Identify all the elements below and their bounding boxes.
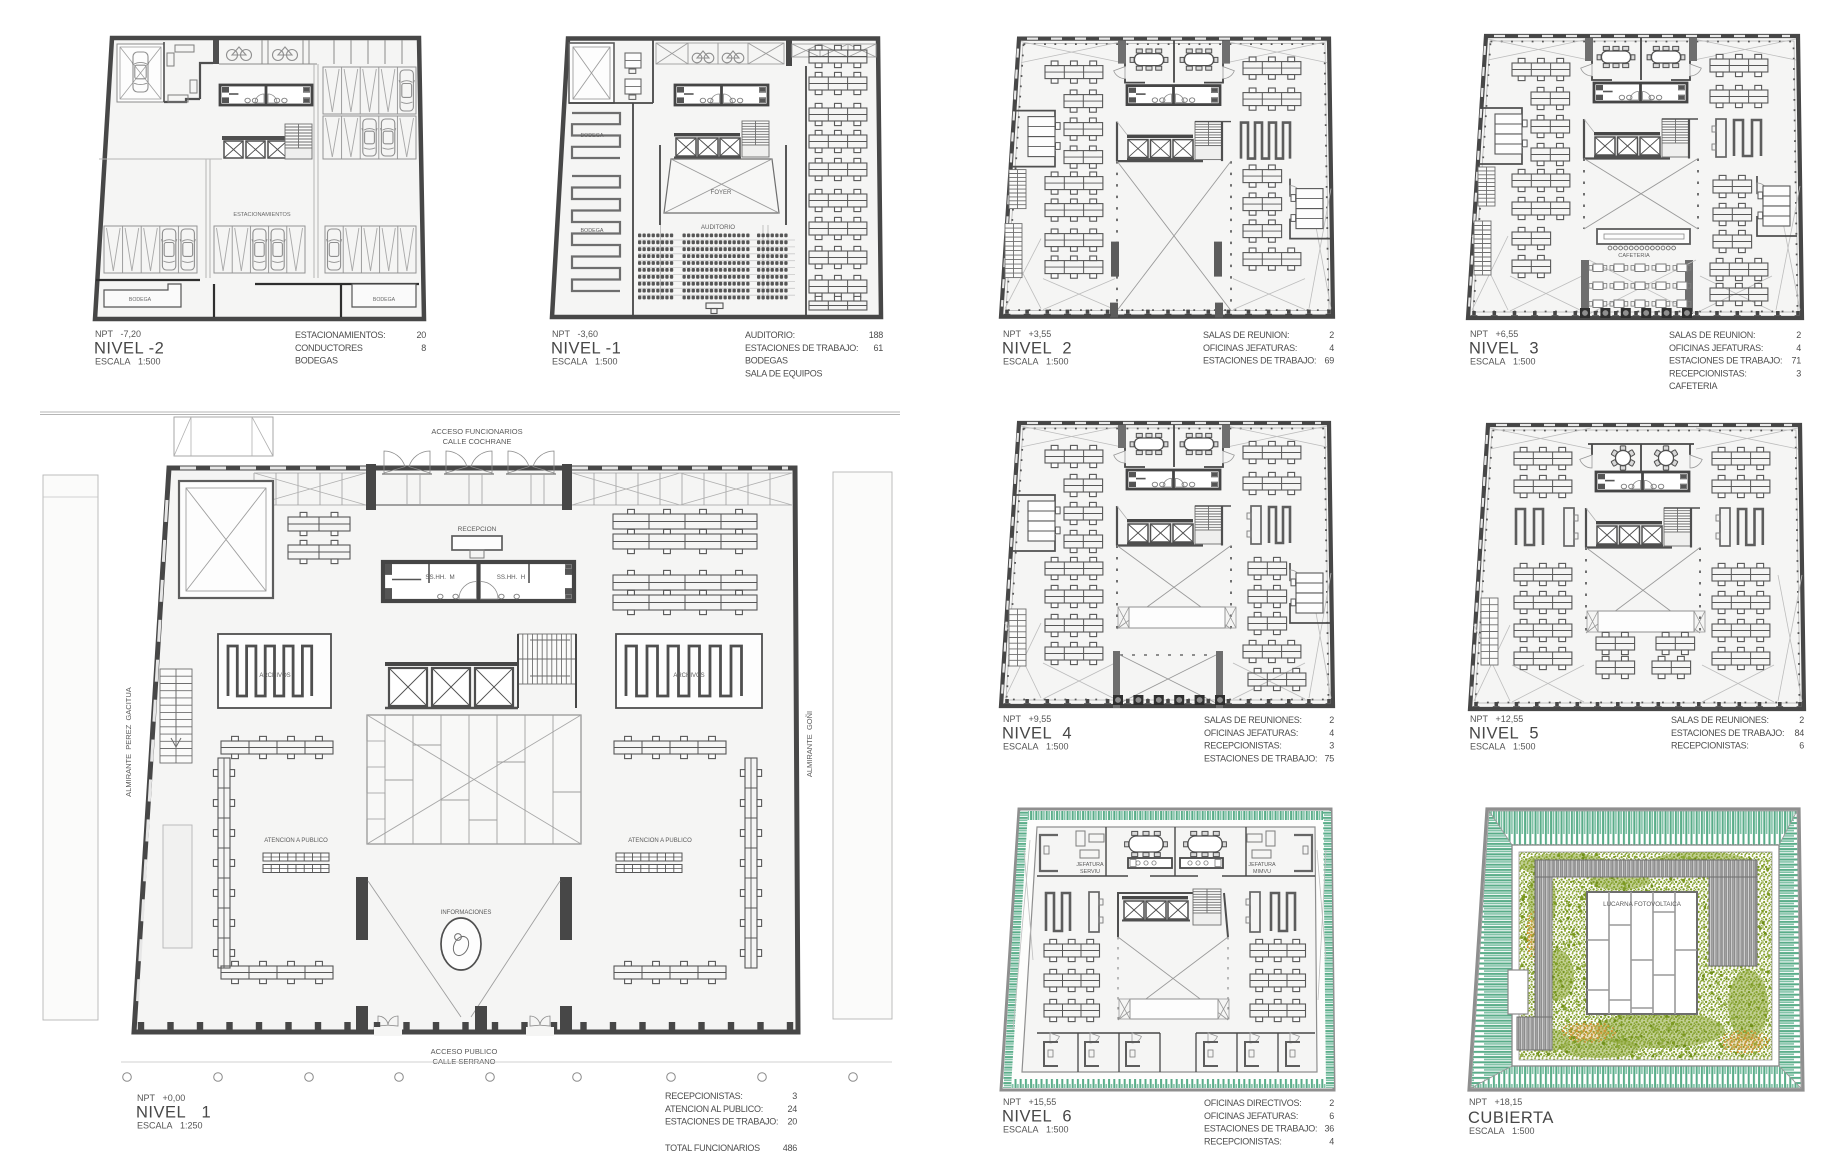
svg-text:BODEGA: BODEGA xyxy=(580,133,603,139)
svg-text:61: 61 xyxy=(873,343,883,353)
svg-text:LUCARNA FOTOVOLTAICA: LUCARNA FOTOVOLTAICA xyxy=(1603,901,1682,908)
svg-text:ESTACIONES DE TRABAJO:: ESTACIONES DE TRABAJO: xyxy=(1204,753,1317,763)
svg-text:84: 84 xyxy=(1794,728,1804,738)
svg-text:3: 3 xyxy=(1796,368,1801,378)
svg-text:2: 2 xyxy=(1329,330,1334,340)
svg-text:ESTACIONAMIENTOS: ESTACIONAMIENTOS xyxy=(233,212,291,218)
svg-text:NPT +6,55: NPT +6,55 xyxy=(1470,329,1518,339)
svg-text:ESTACIONES DE TRABAJO:: ESTACIONES DE TRABAJO: xyxy=(1671,728,1784,738)
svg-text:ESTACIONES DE TRABAJO:: ESTACIONES DE TRABAJO: xyxy=(1669,356,1782,366)
svg-text:NIVEL 3: NIVEL 3 xyxy=(1469,340,1539,358)
svg-text:4: 4 xyxy=(1796,343,1801,353)
svg-text:OFICINAS DIRECTIVOS:: OFICINAS DIRECTIVOS: xyxy=(1204,1098,1302,1108)
svg-text:ESTACIONAMIENTOS:: ESTACIONAMIENTOS: xyxy=(295,330,385,340)
svg-text:71: 71 xyxy=(1791,356,1801,366)
svg-text:3: 3 xyxy=(1329,741,1334,751)
svg-text:ESCALA 1:250: ESCALA 1:250 xyxy=(137,1121,203,1131)
svg-text:RECEPCIONISTAS:: RECEPCIONISTAS: xyxy=(1204,741,1282,751)
svg-text:NPT +0,00: NPT +0,00 xyxy=(137,1093,185,1103)
svg-text:RECEPCIONISTAS:: RECEPCIONISTAS: xyxy=(1669,368,1747,378)
svg-text:OFICINAS JEFATURAS:: OFICINAS JEFATURAS: xyxy=(1203,343,1297,353)
svg-text:CALLE COCHRANE: CALLE COCHRANE xyxy=(443,437,512,446)
svg-text:ARCHIVOS: ARCHIVOS xyxy=(673,673,704,679)
svg-text:OFICINAS JEFATURAS:: OFICINAS JEFATURAS: xyxy=(1204,728,1298,738)
svg-text:NPT -7,20: NPT -7,20 xyxy=(95,329,141,339)
svg-text:NPT +12,55: NPT +12,55 xyxy=(1470,714,1523,724)
svg-text:JEFATURA: JEFATURA xyxy=(1248,862,1276,868)
svg-text:SALAS DE REUNIONES:: SALAS DE REUNIONES: xyxy=(1204,715,1302,725)
svg-text:ESCALA 1:500: ESCALA 1:500 xyxy=(1470,742,1536,752)
svg-text:RECEPCIONISTAS:: RECEPCIONISTAS: xyxy=(1204,1136,1282,1146)
svg-text:RECEPCION: RECEPCION xyxy=(458,526,497,533)
svg-text:ESTACIONES DE TRABAJO:: ESTACIONES DE TRABAJO: xyxy=(745,343,858,353)
svg-text:ESCALA 1:500: ESCALA 1:500 xyxy=(1470,357,1536,367)
svg-text:SS.HH. H: SS.HH. H xyxy=(497,574,526,581)
svg-text:2: 2 xyxy=(1329,1098,1334,1108)
svg-text:FOYER: FOYER xyxy=(711,190,732,196)
svg-text:36: 36 xyxy=(1324,1124,1334,1134)
svg-text:CUBIERTA: CUBIERTA xyxy=(1468,1109,1554,1127)
svg-text:188: 188 xyxy=(869,330,884,340)
svg-text:OFICINAS JEFATURAS:: OFICINAS JEFATURAS: xyxy=(1669,343,1763,353)
svg-text:JEFATURA: JEFATURA xyxy=(1076,862,1104,868)
svg-text:CONDUCTORES: CONDUCTORES xyxy=(295,343,363,353)
svg-text:486: 486 xyxy=(783,1143,798,1153)
svg-text:20: 20 xyxy=(416,330,426,340)
svg-text:ATENCION AL PUBLICO:: ATENCION AL PUBLICO: xyxy=(665,1104,763,1114)
svg-text:ESCALA 1:500: ESCALA 1:500 xyxy=(1003,1125,1069,1135)
svg-text:TOTAL FUNCIONARIOS: TOTAL FUNCIONARIOS xyxy=(665,1143,760,1153)
svg-text:ESTACIONES DE TRABAJO:: ESTACIONES DE TRABAJO: xyxy=(1204,1124,1317,1134)
svg-text:SERVIU: SERVIU xyxy=(1080,869,1100,875)
svg-text:NPT +18,15: NPT +18,15 xyxy=(1469,1097,1522,1107)
svg-text:NIVEL 4: NIVEL 4 xyxy=(1002,725,1072,743)
svg-text:BODEGA: BODEGA xyxy=(373,297,396,303)
svg-text:SS.HH. M: SS.HH. M xyxy=(425,574,454,581)
svg-text:RECEPCIONISTAS:: RECEPCIONISTAS: xyxy=(1671,741,1749,751)
svg-text:ACCESO PUBLICO: ACCESO PUBLICO xyxy=(431,1047,498,1056)
svg-text:ESTACIONES DE TRABAJO:: ESTACIONES DE TRABAJO: xyxy=(1203,356,1316,366)
svg-text:ACCESO FUNCIONARIOS: ACCESO FUNCIONARIOS xyxy=(431,427,522,436)
svg-text:SALAS DE REUNIONES:: SALAS DE REUNIONES: xyxy=(1671,715,1769,725)
svg-text:CAFETERIA: CAFETERIA xyxy=(1618,253,1650,259)
svg-text:SALAS DE REUNION:: SALAS DE REUNION: xyxy=(1669,330,1755,340)
svg-text:ESCALA 1:500: ESCALA 1:500 xyxy=(552,357,618,367)
svg-text:ARCHIVOS: ARCHIVOS xyxy=(259,673,290,679)
svg-text:CAFETERIA: CAFETERIA xyxy=(1669,381,1718,391)
svg-text:ATENCION A PUBLICO: ATENCION A PUBLICO xyxy=(628,838,692,844)
svg-text:ESCALA 1:500: ESCALA 1:500 xyxy=(95,357,161,367)
svg-text:AUDITORIO: AUDITORIO xyxy=(701,224,735,231)
svg-text:2: 2 xyxy=(1799,715,1804,725)
svg-text:4: 4 xyxy=(1329,343,1334,353)
svg-text:24: 24 xyxy=(787,1104,797,1114)
svg-text:3: 3 xyxy=(792,1091,797,1101)
svg-text:NPT +9,55: NPT +9,55 xyxy=(1003,714,1051,724)
svg-text:4: 4 xyxy=(1329,728,1334,738)
svg-text:BODEGA: BODEGA xyxy=(129,297,152,303)
svg-text:2: 2 xyxy=(1796,330,1801,340)
svg-text:ALMIRANTE GOÑI: ALMIRANTE GOÑI xyxy=(805,711,814,777)
svg-text:NPT -3,60: NPT -3,60 xyxy=(552,329,598,339)
svg-text:NIVEL -2: NIVEL -2 xyxy=(94,340,164,358)
svg-text:NIVEL 5: NIVEL 5 xyxy=(1469,725,1539,743)
svg-text:ALMIRANTE PEREZ GACITUA: ALMIRANTE PEREZ GACITUA xyxy=(124,687,133,797)
svg-text:NIVEL 2: NIVEL 2 xyxy=(1002,340,1072,358)
svg-text:ATENCION A PUBLICO: ATENCION A PUBLICO xyxy=(264,838,328,844)
svg-text:ESCALA 1:500: ESCALA 1:500 xyxy=(1469,1126,1535,1136)
svg-text:ESCALA 1:500: ESCALA 1:500 xyxy=(1003,357,1069,367)
svg-text:NPT +15,55: NPT +15,55 xyxy=(1003,1097,1056,1107)
svg-text:BODEGA: BODEGA xyxy=(580,228,603,234)
svg-text:SALAS DE REUNION:: SALAS DE REUNION: xyxy=(1203,330,1289,340)
svg-text:ESTACIONES DE TRABAJO:: ESTACIONES DE TRABAJO: xyxy=(665,1117,778,1127)
svg-text:ESCALA 1:500: ESCALA 1:500 xyxy=(1003,742,1069,752)
svg-text:8: 8 xyxy=(421,343,426,353)
svg-text:69: 69 xyxy=(1324,356,1334,366)
svg-text:2: 2 xyxy=(1329,715,1334,725)
svg-text:AUDITORIO:: AUDITORIO: xyxy=(745,330,795,340)
svg-text:OFICINAS JEFATURAS:: OFICINAS JEFATURAS: xyxy=(1204,1111,1298,1121)
svg-text:NIVEL -1: NIVEL -1 xyxy=(551,340,621,358)
svg-text:RECEPCIONISTAS:: RECEPCIONISTAS: xyxy=(665,1091,743,1101)
svg-text:INFORMACIONES: INFORMACIONES xyxy=(441,910,492,916)
svg-text:4: 4 xyxy=(1329,1136,1334,1146)
svg-text:SALA DE EQUIPOS: SALA DE EQUIPOS xyxy=(745,368,823,378)
svg-text:BODEGAS: BODEGAS xyxy=(745,356,788,366)
svg-text:NIVEL 1: NIVEL 1 xyxy=(136,1104,211,1122)
svg-text:6: 6 xyxy=(1799,741,1804,751)
svg-text:NPT +3,55: NPT +3,55 xyxy=(1003,329,1051,339)
svg-text:CALLE SERRANO: CALLE SERRANO xyxy=(433,1057,496,1066)
svg-text:20: 20 xyxy=(787,1117,797,1127)
svg-text:NIVEL 6: NIVEL 6 xyxy=(1002,1108,1072,1126)
svg-text:MIMVU: MIMVU xyxy=(1253,869,1271,875)
svg-text:6: 6 xyxy=(1329,1111,1334,1121)
svg-text:75: 75 xyxy=(1324,753,1334,763)
svg-text:BODEGAS: BODEGAS xyxy=(295,356,338,366)
